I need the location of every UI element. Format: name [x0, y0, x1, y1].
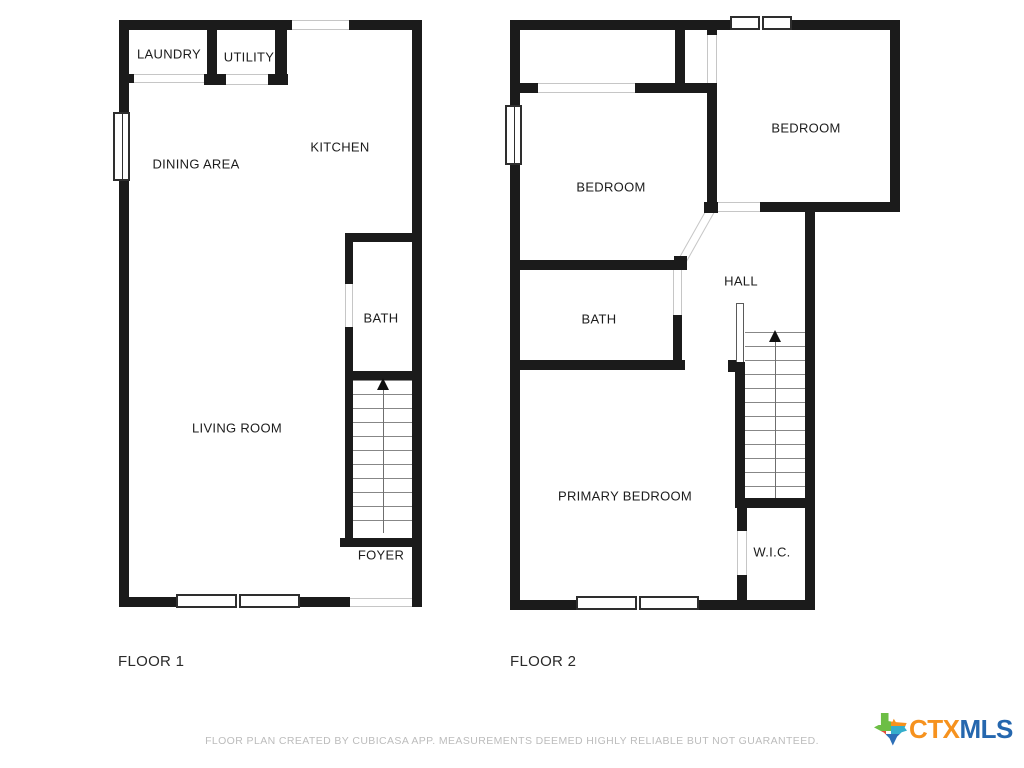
wall-segment	[735, 498, 815, 508]
wall-opening	[292, 20, 349, 30]
closet-door-opening	[707, 35, 717, 83]
wall-segment	[119, 20, 129, 607]
wic-door-opening	[737, 531, 747, 576]
room-label-kitchen: KITCHEN	[310, 140, 369, 155]
wall-segment	[298, 597, 350, 607]
disclaimer-text: FLOOR PLAN CREATED BY CUBICASA APP. MEAS…	[0, 735, 1024, 747]
wall-segment	[735, 362, 745, 508]
floor-plan-canvas: LAUNDRY UTILITY KITCHEN DINING AREA BATH…	[0, 0, 1024, 768]
window-divider	[758, 16, 764, 30]
texas-icon-part	[874, 713, 891, 731]
logo-text-mls: MLS	[960, 714, 1013, 744]
closet-slider-opening	[538, 83, 635, 93]
stair-railing	[736, 303, 744, 363]
window	[113, 112, 130, 181]
room-label-wic: W.I.C.	[753, 545, 790, 560]
texas-icon-part	[891, 713, 907, 726]
wall-segment	[737, 575, 747, 600]
entry-door-opening	[350, 598, 412, 607]
wall-segment	[345, 238, 353, 284]
wall-segment	[704, 202, 718, 213]
window	[505, 105, 522, 165]
wall-segment	[760, 202, 900, 212]
wall-segment	[412, 20, 422, 607]
window	[730, 16, 792, 30]
wall-segment	[119, 74, 134, 83]
ctxmls-logo: CTXMLS	[874, 711, 1013, 747]
room-label-dining-area: DINING AREA	[152, 157, 239, 172]
wall-segment	[675, 30, 685, 88]
room-label-laundry: LAUNDRY	[137, 47, 201, 62]
wall-segment	[510, 360, 685, 370]
wall-segment	[510, 600, 578, 610]
stair-direction-line	[383, 380, 384, 533]
room-label-primary-bedroom: PRIMARY BEDROOM	[558, 489, 692, 504]
logo-text: CTXMLS	[909, 713, 1013, 746]
laundry-door-opening	[134, 74, 204, 83]
window-divider	[635, 596, 641, 610]
room-label-bedroom-left: BEDROOM	[576, 180, 645, 195]
room-label-utility: UTILITY	[224, 50, 275, 65]
wall-segment	[119, 20, 292, 30]
wall-segment	[510, 20, 732, 30]
floor-1-title: FLOOR 1	[118, 653, 184, 670]
wall-segment	[345, 233, 422, 242]
wall-segment	[204, 74, 226, 85]
up-arrow-icon	[769, 330, 781, 342]
room-label-bath-1: BATH	[364, 311, 399, 326]
floor-2-title: FLOOR 2	[510, 653, 576, 670]
utility-door-opening	[226, 74, 268, 85]
up-arrow-icon	[377, 378, 389, 390]
staircase	[353, 380, 412, 533]
texas-icon-part	[874, 731, 886, 746]
wall-segment	[790, 20, 900, 30]
room-label-hall: HALL	[724, 274, 758, 289]
wall-segment	[340, 538, 422, 547]
wall-segment	[520, 83, 538, 93]
logo-text-ctx: CTX	[909, 714, 960, 744]
wall-segment	[635, 83, 717, 93]
room-label-living-room: LIVING ROOM	[192, 421, 282, 436]
window-pane-line	[514, 107, 515, 163]
room-label-bath-2: BATH	[582, 312, 617, 327]
bath-door-opening	[673, 270, 682, 316]
wall-segment	[119, 597, 179, 607]
window	[176, 594, 300, 608]
wall-segment	[512, 260, 677, 270]
texas-icon	[874, 713, 907, 746]
texas-icon-part	[891, 726, 907, 734]
window-pane-line	[122, 114, 123, 179]
wall-segment	[890, 20, 900, 212]
wall-segment	[697, 600, 815, 610]
wall-segment	[674, 256, 687, 270]
window-divider	[235, 594, 241, 608]
room-label-foyer: FOYER	[358, 548, 404, 563]
wall-segment	[275, 30, 287, 85]
wall-segment	[805, 212, 815, 610]
window	[576, 596, 699, 610]
bath-door-opening	[345, 284, 353, 327]
texas-icon-part	[886, 734, 907, 746]
bedroom-door-opening	[717, 202, 760, 212]
wall-segment	[737, 508, 747, 532]
staircase	[745, 332, 805, 498]
room-label-bedroom-right: BEDROOM	[771, 121, 840, 136]
stair-direction-line	[775, 332, 776, 498]
wall-segment	[345, 378, 353, 547]
